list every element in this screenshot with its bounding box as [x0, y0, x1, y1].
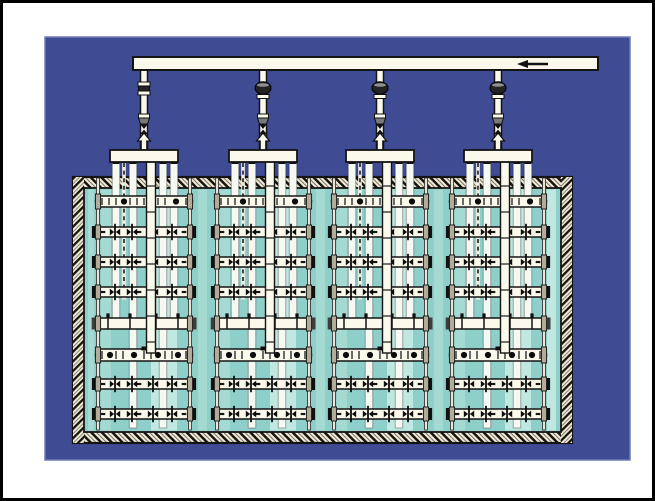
rail-clamp	[331, 225, 336, 239]
rail-clamp	[214, 255, 219, 269]
diffuser-orifice	[292, 198, 298, 204]
manifold-drop-pipe	[231, 161, 239, 326]
rail-clamp	[214, 347, 219, 363]
dash-mark	[536, 231, 541, 233]
clamp-tick	[407, 224, 409, 240]
clamp-stem	[531, 318, 533, 329]
supply-header-layer	[133, 57, 598, 70]
clamp-tick	[407, 254, 409, 270]
clamp-stem	[413, 318, 415, 329]
distribution-manifold	[346, 150, 414, 162]
clamp-tick	[171, 406, 173, 422]
hold-down-clamp	[128, 313, 131, 318]
dash-mark	[373, 383, 378, 385]
diffuser-orifice	[367, 352, 373, 358]
end-cap	[547, 318, 551, 330]
valve-flange	[257, 95, 269, 99]
clamp-tick	[485, 224, 487, 240]
pipe-joint-tick	[407, 351, 408, 359]
clamp-tick	[250, 254, 252, 270]
end-cap	[211, 318, 215, 330]
clamp-stem	[343, 318, 345, 329]
rail-clamp	[541, 316, 546, 331]
clamp-tick	[468, 254, 470, 270]
rail-clamp	[423, 194, 428, 209]
clamp-tick	[250, 376, 252, 392]
pipe-joint-tick	[351, 351, 352, 359]
pipe-joint-tick	[262, 198, 263, 205]
clamp-tick	[233, 224, 235, 240]
reducer-flange	[258, 114, 269, 118]
valve-flange	[374, 95, 386, 99]
rail-clamp	[187, 285, 192, 299]
dash-mark	[182, 383, 187, 385]
pipe-joint-tick	[525, 351, 526, 359]
dash-mark	[337, 383, 342, 385]
pipe-joint-tick	[421, 198, 422, 205]
pipe-joint-tick	[108, 198, 109, 205]
pipe-joint-tick	[518, 351, 519, 359]
hold-down-clamp	[342, 313, 345, 318]
rail-clamp	[541, 194, 546, 209]
water-highlight-band	[434, 190, 443, 431]
reducer-fitting	[375, 118, 386, 124]
reducer-fitting	[258, 118, 269, 124]
distribution-manifold	[464, 150, 532, 162]
pipe-joint-tick	[337, 198, 338, 205]
rail-clamp	[214, 377, 219, 391]
dash-mark	[491, 261, 496, 263]
dash-mark	[220, 291, 225, 293]
dash-mark	[491, 291, 496, 293]
pipe-union-band	[139, 86, 150, 91]
clamp-tick	[271, 406, 273, 422]
diffuser-orifice	[527, 198, 533, 204]
dash-mark	[536, 383, 541, 385]
diffuser-orifice	[485, 352, 491, 358]
dash-mark	[101, 261, 106, 263]
dash-mark	[455, 413, 460, 415]
clamp-tick	[171, 376, 173, 392]
dash-mark	[256, 413, 261, 415]
ball-valve-highlight	[374, 83, 386, 87]
downcomer-pipe	[501, 161, 510, 353]
clamp-tick	[250, 224, 252, 240]
ball-valve-highlight	[257, 83, 269, 87]
pipe-joint-tick	[351, 198, 352, 205]
hold-down-clamp	[482, 313, 485, 318]
clamp-tick	[525, 254, 527, 270]
pipe-joint-tick	[185, 351, 186, 359]
diffuser-orifice	[240, 198, 246, 204]
diffuser-orifice	[411, 352, 417, 358]
dash-mark	[101, 413, 106, 415]
clamp-tick	[367, 284, 369, 300]
clamp-tick	[350, 254, 352, 270]
rail-clamp	[331, 285, 336, 299]
pipe-joint-tick	[220, 198, 221, 205]
rail-clamp	[187, 407, 192, 421]
clamp-tick	[506, 406, 508, 422]
rail-clamp	[449, 285, 454, 299]
hold-down-clamp	[460, 313, 463, 318]
hold-down-clamp	[295, 313, 298, 318]
dash-mark	[536, 261, 541, 263]
rail-clamp	[331, 377, 336, 391]
dash-mark	[418, 231, 423, 233]
clamp-tick	[171, 224, 173, 240]
diffuser-orifice	[175, 352, 181, 358]
end-cap	[328, 318, 332, 330]
dash-mark	[137, 383, 142, 385]
diffuser-orifice	[357, 198, 363, 204]
rail-clamp	[95, 194, 100, 209]
center-notch	[496, 347, 501, 351]
reducer-flange	[493, 114, 504, 118]
clamp-tick	[350, 376, 352, 392]
pipe-joint-tick	[276, 198, 277, 205]
downcomer-pipe	[266, 161, 275, 353]
pipe-joint-tick	[539, 351, 540, 359]
rail-clamp	[449, 255, 454, 269]
pipe-joint-tick	[393, 198, 394, 205]
water-highlight-band	[198, 190, 207, 431]
pipe-joint-tick	[171, 351, 172, 359]
rail-clamp	[187, 194, 192, 209]
rail-clamp	[331, 255, 336, 269]
dash-mark	[220, 261, 225, 263]
manifold-joint	[514, 162, 521, 165]
reducer-fitting	[139, 118, 150, 124]
clamp-tick	[114, 224, 116, 240]
dash-mark	[373, 231, 378, 233]
reducer-flange	[375, 114, 386, 118]
dash-mark	[337, 291, 342, 293]
pipe-joint-tick	[227, 198, 228, 205]
water-highlight-band	[337, 190, 347, 431]
diffuser-orifice	[461, 352, 467, 358]
manifold-drop-pipe	[348, 161, 356, 326]
pipe-joint-tick	[122, 351, 123, 359]
rail-clamp	[306, 285, 311, 299]
clamp-tick	[114, 376, 116, 392]
pipe-joint-tick	[379, 198, 380, 205]
rail-clamp	[187, 316, 192, 331]
manifold-joint	[525, 162, 532, 165]
clamp-tick	[407, 406, 409, 422]
rail-clamp	[306, 194, 311, 209]
clamp-tick	[367, 224, 369, 240]
rail-clamp	[449, 225, 454, 239]
clamp-tick	[367, 406, 369, 422]
clamp-tick	[468, 284, 470, 300]
clamp-tick	[525, 406, 527, 422]
clamp-tick	[407, 284, 409, 300]
end-cap	[429, 318, 433, 330]
dash-mark	[491, 413, 496, 415]
pipe-joint-tick	[455, 198, 456, 205]
clamp-stem	[483, 318, 485, 329]
diffuser-orifice	[250, 352, 256, 358]
pipe-joint-tick	[400, 351, 401, 359]
hold-down-clamp	[530, 313, 533, 318]
diffuser-orifice	[107, 352, 113, 358]
end-cap	[193, 318, 197, 330]
dash-mark	[220, 383, 225, 385]
diffuser-orifice	[173, 198, 179, 204]
clamp-tick	[131, 254, 133, 270]
dash-mark	[373, 261, 378, 263]
dash-mark	[101, 383, 106, 385]
pipe-joint-tick	[518, 198, 519, 205]
rail-clamp	[541, 347, 546, 363]
rail-clamp	[306, 316, 311, 331]
dash-mark	[373, 413, 378, 415]
rail-clamp	[331, 316, 336, 331]
diffuser-orifice	[475, 198, 481, 204]
rail-clamp	[214, 407, 219, 421]
hold-down-clamp	[225, 313, 228, 318]
rail-clamp	[423, 347, 428, 363]
clamp-stem	[365, 318, 367, 329]
pipe-joint-tick	[248, 198, 249, 205]
water-highlight-band	[316, 190, 325, 431]
dash-mark	[491, 231, 496, 233]
pipe-joint-tick	[129, 198, 130, 205]
pipe-union	[138, 82, 150, 86]
rail-clamp	[306, 347, 311, 363]
distribution-manifold	[110, 150, 178, 162]
rail-clamp	[306, 225, 311, 239]
dash-mark	[301, 231, 306, 233]
grid-side-rail	[425, 178, 428, 430]
dash-mark	[536, 413, 541, 415]
rail-clamp	[449, 194, 454, 209]
manifold-joint	[249, 162, 256, 165]
clamp-tick	[271, 376, 273, 392]
clamp-tick	[485, 284, 487, 300]
rail-clamp	[187, 347, 192, 363]
water-highlight-band	[547, 190, 556, 431]
clamp-tick	[468, 224, 470, 240]
water-highlight-band	[88, 190, 94, 431]
dash-mark	[455, 383, 460, 385]
manifold-drop-pipe	[289, 161, 297, 326]
pipe-joint-tick	[255, 198, 256, 205]
dash-mark	[536, 291, 541, 293]
center-notch	[142, 347, 147, 351]
diffuser-orifice	[294, 352, 300, 358]
clamp-tick	[131, 224, 133, 240]
manifold-joint	[160, 162, 167, 165]
water-highlight-band	[220, 190, 230, 431]
pipe-joint-tick	[290, 351, 291, 359]
pipe-joint-tick	[483, 198, 484, 205]
dash-mark	[256, 291, 261, 293]
clamp-tick	[506, 376, 508, 392]
clamp-tick	[131, 284, 133, 300]
rail-clamp	[95, 377, 100, 391]
dash-mark	[256, 261, 261, 263]
pipe-joint-tick	[497, 351, 498, 359]
distribution-manifold	[229, 150, 297, 162]
pipe-joint-tick	[497, 198, 498, 205]
manifold-drop-pipe	[112, 161, 120, 326]
clamp-stem	[248, 318, 250, 329]
clamp-tick	[171, 284, 173, 300]
dash-mark	[337, 261, 342, 263]
end-cap	[92, 318, 96, 330]
rail-clamp	[541, 285, 546, 299]
grid-side-rail	[189, 178, 192, 430]
pipe-joint-tick	[490, 198, 491, 205]
dash-mark	[137, 413, 142, 415]
manifold-drop-pipe	[524, 161, 532, 326]
rail-clamp	[187, 255, 192, 269]
clamp-tick	[350, 224, 352, 240]
clamp-stem	[226, 318, 228, 329]
rail-clamp	[214, 285, 219, 299]
pipe-joint-tick	[379, 351, 380, 359]
grid-side-rail	[451, 178, 454, 430]
dash-mark	[455, 291, 460, 293]
pipe-joint-tick	[143, 198, 144, 205]
rail-clamp	[214, 316, 219, 331]
rail-clamp	[306, 407, 311, 421]
clamp-tick	[171, 254, 173, 270]
clamp-tick	[114, 406, 116, 422]
rail-clamp	[331, 407, 336, 421]
clamp-tick	[290, 254, 292, 270]
clamp-stem	[129, 318, 131, 329]
clamp-tick	[233, 254, 235, 270]
dash-mark	[418, 291, 423, 293]
clamp-tick	[485, 406, 487, 422]
dash-mark	[182, 231, 187, 233]
manifold-joint	[467, 162, 474, 165]
diffuser-orifice	[121, 198, 127, 204]
rail-clamp	[541, 377, 546, 391]
pipe-joint-tick	[115, 351, 116, 359]
dash-mark	[455, 261, 460, 263]
rail-clamp	[541, 255, 546, 269]
pipe-joint-tick	[115, 198, 116, 205]
dash-mark	[182, 291, 187, 293]
dash-mark	[418, 261, 423, 263]
clamp-tick	[290, 284, 292, 300]
clamp-tick	[388, 376, 390, 392]
clamp-tick	[468, 406, 470, 422]
pipe-joint-tick	[462, 198, 463, 205]
pipe-joint-tick	[539, 198, 540, 205]
pipe-joint-tick	[511, 198, 512, 205]
rail-clamp	[95, 316, 100, 331]
hold-down-clamp	[106, 313, 109, 318]
clamp-stem	[296, 318, 298, 329]
manifold-joint	[484, 162, 491, 165]
dash-mark	[256, 231, 261, 233]
rail-clamp	[449, 407, 454, 421]
grid-side-rail	[97, 178, 100, 430]
clamp-tick	[525, 376, 527, 392]
dash-mark	[137, 261, 142, 263]
dash-mark	[256, 383, 261, 385]
dash-mark	[337, 413, 342, 415]
dash-mark	[337, 231, 342, 233]
dash-mark	[137, 231, 142, 233]
clamp-tick	[367, 254, 369, 270]
dash-mark	[101, 291, 106, 293]
grid-side-rail	[308, 178, 311, 430]
tank-wall-left	[73, 177, 84, 443]
clamp-tick	[525, 224, 527, 240]
manifold-joint	[171, 162, 178, 165]
clamp-tick	[485, 254, 487, 270]
tank-wall-right	[561, 177, 572, 443]
rail-clamp	[541, 407, 546, 421]
manifold-joint	[349, 162, 356, 165]
reducer-flange	[139, 114, 150, 118]
pipe-joint-tick	[241, 351, 242, 359]
water-highlight-band	[101, 190, 111, 431]
clamp-tick	[114, 284, 116, 300]
grid-side-rail	[333, 178, 336, 430]
hold-down-clamp	[412, 313, 415, 318]
rail-clamp	[187, 225, 192, 239]
rail-clamp	[95, 407, 100, 421]
diffuser-orifice	[226, 352, 232, 358]
reducer-fitting	[493, 118, 504, 124]
rail-clamp	[423, 316, 428, 331]
valve-flange	[492, 95, 504, 99]
pipe-joint-tick	[185, 198, 186, 205]
dash-mark	[137, 291, 142, 293]
clamp-stem	[177, 318, 179, 329]
clamp-tick	[233, 406, 235, 422]
clamp-tick	[114, 254, 116, 270]
pipe-joint-tick	[455, 351, 456, 359]
clamp-tick	[152, 406, 154, 422]
pipe-joint-tick	[337, 351, 338, 359]
manifold-drop-pipe	[406, 161, 414, 326]
water-highlight-band	[455, 190, 465, 431]
hold-down-clamp	[364, 313, 367, 318]
rail-clamp	[331, 194, 336, 209]
hold-down-clamp	[247, 313, 250, 318]
rail-clamp	[214, 194, 219, 209]
clamp-tick	[388, 406, 390, 422]
pipe-joint-tick	[283, 351, 284, 359]
dash-mark	[301, 261, 306, 263]
pipe-joint-tick	[136, 198, 137, 205]
pipe-joint-tick	[304, 198, 305, 205]
downcomer-pipe	[383, 161, 392, 353]
manifold-joint	[130, 162, 137, 165]
pipe-joint-tick	[372, 198, 373, 205]
downcomer-pipe	[147, 161, 156, 353]
pipe-joint-tick	[358, 351, 359, 359]
dash-mark	[220, 413, 225, 415]
diffuser-orifice	[529, 352, 535, 358]
manifold-joint	[290, 162, 297, 165]
manifold-drop-pipe	[466, 161, 474, 326]
grid-side-rail	[216, 178, 219, 430]
clamp-tick	[250, 284, 252, 300]
clamp-tick	[131, 376, 133, 392]
dash-mark	[491, 383, 496, 385]
dash-mark	[418, 383, 423, 385]
manifold-joint	[407, 162, 414, 165]
